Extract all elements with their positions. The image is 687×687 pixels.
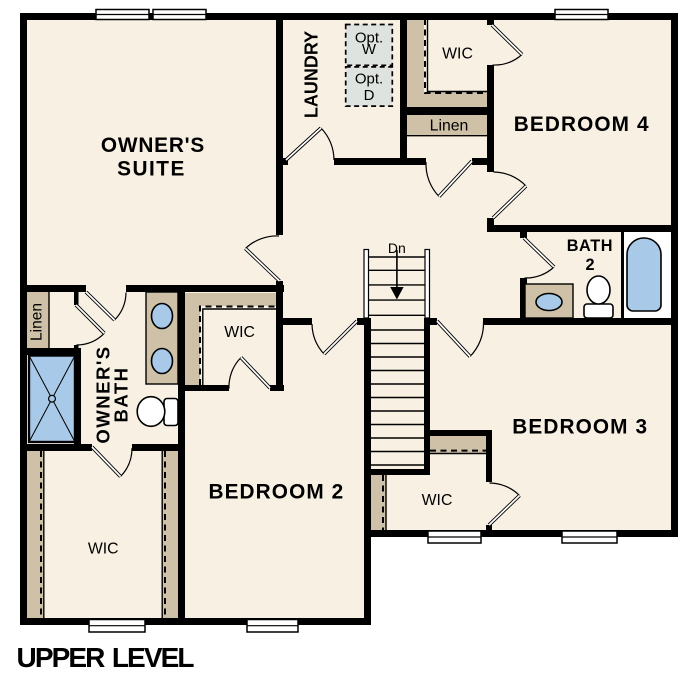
svg-text:Dn: Dn — [388, 240, 406, 256]
svg-text:BEDROOM 2: BEDROOM 2 — [208, 481, 344, 504]
svg-text:D: D — [364, 87, 375, 104]
svg-text:WIC: WIC — [422, 492, 453, 509]
svg-text:UPPER LEVEL: UPPER LEVEL — [17, 642, 195, 673]
svg-text:SUITE: SUITE — [117, 157, 186, 180]
svg-text:WIC: WIC — [442, 46, 473, 63]
svg-text:W: W — [362, 41, 377, 58]
svg-text:OWNER'S: OWNER'S — [101, 134, 205, 157]
svg-text:BATH: BATH — [111, 366, 132, 422]
svg-text:LAUNDRY: LAUNDRY — [302, 31, 322, 118]
svg-text:BEDROOM 4: BEDROOM 4 — [514, 113, 650, 136]
svg-text:WIC: WIC — [88, 541, 119, 558]
svg-text:BATH: BATH — [567, 237, 613, 255]
svg-text:BEDROOM 3: BEDROOM 3 — [512, 415, 648, 438]
svg-text:Linen: Linen — [430, 117, 469, 134]
svg-text:Linen: Linen — [29, 303, 46, 341]
svg-text:WIC: WIC — [224, 324, 255, 341]
svg-text:Opt.: Opt. — [355, 71, 383, 88]
svg-text:2: 2 — [585, 256, 594, 274]
